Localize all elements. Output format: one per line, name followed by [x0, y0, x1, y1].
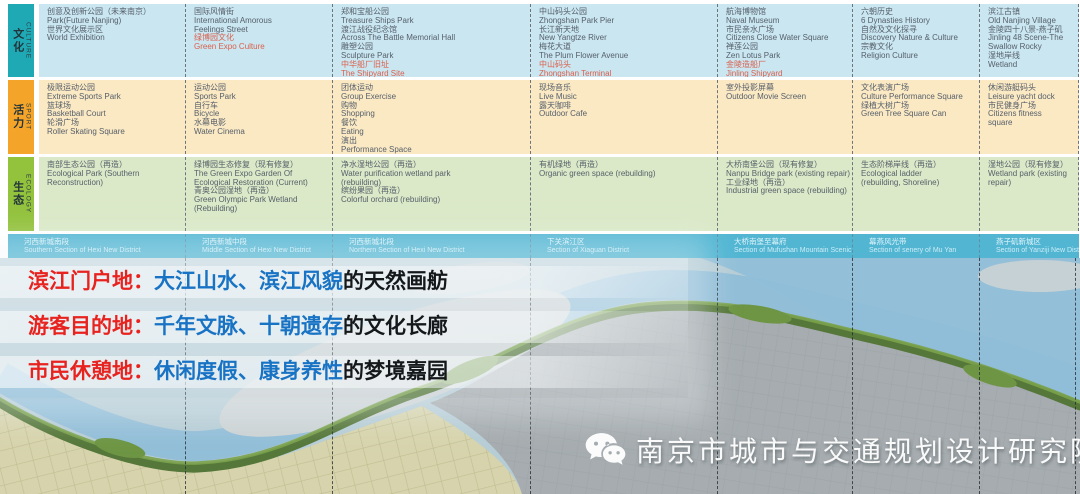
table-row-ecology: 生态ECOLOGY南部生态公园（再造）Ecological Park (Sout…: [8, 157, 1079, 231]
cell-sport-1: 极限运动公园Extreme Sports Park篮球场Basketball C…: [39, 80, 185, 154]
slogan-block: 滨江门户地：大江山水、滨江风貌的天然画舫游客目的地：千年文脉、十朝遗存的文化长廊…: [0, 266, 700, 401]
table-row-culture: 文化CULTURE创意及创新公园（未来南京）Park(Future Nanjin…: [8, 4, 1079, 77]
cell-line: Outdoor Cafe: [539, 110, 717, 119]
section-en: Section of Yanziji New District: [996, 246, 1079, 255]
cell-sport-7: 休闲游艇码头Leisure yacht dock市民健身广场Citizens f…: [979, 80, 1079, 154]
slogan-label: 市民休憩地：: [28, 360, 154, 383]
table-row-sport: 活力SPORT极限运动公园Extreme Sports Park篮球场Baske…: [8, 80, 1079, 154]
cell-line: Jinling Shipyard: [726, 70, 852, 77]
row-header-zh: 活力: [12, 104, 23, 130]
cell-culture-4: 中山码头公园Zhongshan Park Pier长江新天地New Yangtz…: [530, 4, 717, 77]
cell-culture-7: 滨江古镇Old Nanjing Village金陵四十八景-燕子矶Jinling…: [979, 4, 1079, 77]
watermark: 南京市城市与交通规划设计研究院: [584, 430, 1080, 470]
cell-sport-4: 现场音乐Live Music露天咖啡Outdoor Cafe: [530, 80, 717, 154]
slogan-line-3: 市民休憩地：休闲度假、康身养性的梦境嘉园: [0, 356, 688, 388]
cell-line: Reconstruction): [47, 179, 185, 188]
section-zh: 河西新城南段: [24, 237, 185, 246]
section-zh: 幕燕风光带: [869, 237, 979, 246]
cell-line: Colorful orchard (rebuilding): [341, 196, 530, 205]
cell-line: Outdoor Movie Screen: [726, 93, 852, 102]
slogan-highlight: 千年文脉、十朝遗存: [154, 315, 343, 338]
row-header-en: CULTURE: [24, 22, 31, 59]
slogan-tail: 的文化长廊: [343, 315, 448, 338]
section-en: Section of Mufushan Mountain Scenic Area: [734, 246, 852, 255]
cell-line: Religion Culture: [861, 52, 979, 61]
row-body-sport: 极限运动公园Extreme Sports Park篮球场Basketball C…: [39, 80, 1079, 154]
cell-culture-2: 国际风情街International AmorousFeelings Stree…: [185, 4, 332, 77]
row-header-ecology: 生态ECOLOGY: [8, 157, 34, 231]
cell-ecology-1: 南部生态公园（再造）Ecological Park (SouthernRecon…: [39, 157, 185, 231]
row-header-en: ECOLOGY: [24, 174, 31, 213]
section-en: Southern Section of Hexi New District: [24, 246, 185, 255]
cell-sport-2: 运动公园Sports Park自行车Bicycle水幕电影Water Cinem…: [185, 80, 332, 154]
cell-line: 餐饮: [341, 119, 530, 128]
slogan-line-2: 游客目的地：千年文脉、十朝遗存的文化长廊: [0, 311, 688, 343]
section-cell-2: 河西新城中段Middle Section of Hexi New Distric…: [185, 234, 332, 258]
row-header-en: SPORT: [24, 103, 31, 130]
section-cell-5: 大桥南堡至幕府Section of Mufushan Mountain Scen…: [717, 234, 852, 258]
cell-sport-3: 团体运动Group Exercise购物Shopping餐饮Eating演出Pe…: [332, 80, 530, 154]
row-body-ecology: 南部生态公园（再造）Ecological Park (SouthernRecon…: [39, 157, 1079, 231]
cell-line: Wetland: [988, 61, 1078, 70]
watermark-text: 南京市城市与交通规划设计研究院: [636, 430, 1080, 470]
cell-line: Zhongshan Terminal: [539, 70, 717, 77]
planning-board: 文化CULTURE创意及创新公园（未来南京）Park(Future Nanjin…: [0, 0, 1080, 494]
cell-ecology-2: 绿博园生态修复（现有修复）The Green Expo Garden OfEco…: [185, 157, 332, 231]
slogan-label: 滨江门户地：: [28, 270, 154, 293]
cell-ecology-3: 净水湿地公园（再造）Water purification wetland par…: [332, 157, 530, 231]
cell-culture-5: 航海博物馆Naval Museum市民亲水广场Citizens Close Wa…: [717, 4, 852, 77]
cell-line: repair): [988, 179, 1078, 188]
row-header-zh: 文化: [12, 28, 23, 54]
row-header-sport: 活力SPORT: [8, 80, 34, 154]
cell-sport-5: 室外投影屏幕Outdoor Movie Screen: [717, 80, 852, 154]
map-area: 滨江门户地：大江山水、滨江风貌的天然画舫游客目的地：千年文脉、十朝遗存的文化长廊…: [0, 258, 1080, 494]
cell-ecology-4: 有机绿地（再造）Organic green space (rebuilding): [530, 157, 717, 231]
cell-culture-6: 六朝历史6 Dynasties History自然及文化探寻Discovery …: [852, 4, 979, 77]
section-zh: 燕子矶新城区: [996, 237, 1079, 246]
wechat-icon: [584, 431, 628, 469]
cell-line: (Rebuilding): [194, 205, 332, 214]
cell-line: Shopping: [341, 110, 530, 119]
cell-ecology-5: 大桥南堡公园（现有修复）Nanpu Bridge park (existing …: [717, 157, 852, 231]
cell-ecology-7: 湿地公园（现有修复）Wetland park (existingrepair): [979, 157, 1079, 231]
slogan-line-1: 滨江门户地：大江山水、滨江风貌的天然画舫: [0, 266, 688, 298]
section-en: Section of Xiaguan District: [547, 246, 717, 255]
cell-culture-1: 创意及创新公园（未来南京）Park(Future Nanjing)世界文化展示区…: [39, 4, 185, 77]
slogan-tail: 的天然画舫: [343, 270, 448, 293]
program-table: 文化CULTURE创意及创新公园（未来南京）Park(Future Nanjin…: [8, 4, 1079, 234]
cell-line: Green Expo Culture: [194, 43, 332, 52]
section-zh: 下关滨江区: [547, 237, 717, 246]
section-zh: 大桥南堡至幕府: [734, 237, 852, 246]
section-cell-4: 下关滨江区Section of Xiaguan District: [530, 234, 717, 258]
row-header-culture: 文化CULTURE: [8, 4, 34, 77]
slogan-label: 游客目的地：: [28, 315, 154, 338]
cell-line: Industrial green space (rebuilding): [726, 187, 852, 196]
cell-line: (rebuilding, Shoreline): [861, 179, 979, 188]
cell-line: World Exhibition: [47, 34, 185, 43]
cell-line: Roller Skating Square: [47, 128, 185, 137]
cell-line: Group Exercise: [341, 93, 530, 102]
row-header-zh: 生态: [12, 181, 23, 207]
cell-ecology-6: 生态阶梯岸线（再造）Ecological ladder(rebuilding, …: [852, 157, 979, 231]
section-zh: 河西新城中段: [202, 237, 332, 246]
cell-line: Eating: [341, 128, 530, 137]
slogan-highlight: 大江山水、滨江风貌: [154, 270, 343, 293]
cell-line: The Shipyard Site: [341, 70, 530, 77]
cell-line: Performance Space: [341, 146, 530, 154]
slogan-highlight: 休闲度假、康身养性: [154, 360, 343, 383]
cell-line: Green Tree Square Can: [861, 110, 979, 119]
section-cell-1: 河西新城南段Southern Section of Hexi New Distr…: [8, 234, 185, 258]
section-cell-3: 河西新城北段Northern Section of Hexi New Distr…: [332, 234, 530, 258]
section-en: Section of senery of Mu Yan: [869, 246, 979, 255]
cell-sport-6: 文化表演广场Culture Performance Square绿植大树广场Gr…: [852, 80, 979, 154]
section-en: Middle Section of Hexi New District: [202, 246, 332, 255]
section-cell-7: 燕子矶新城区Section of Yanziji New District: [979, 234, 1079, 258]
slogan-tail: 的梦境嘉园: [343, 360, 448, 383]
row-body-culture: 创意及创新公园（未来南京）Park(Future Nanjing)世界文化展示区…: [39, 4, 1079, 77]
section-zh: 河西新城北段: [349, 237, 530, 246]
section-cell-6: 幕燕风光带Section of senery of Mu Yan: [852, 234, 979, 258]
cell-line: Organic green space (rebuilding): [539, 170, 717, 179]
section-strip: 河西新城南段Southern Section of Hexi New Distr…: [8, 234, 1079, 258]
cell-line: Water Cinema: [194, 128, 332, 137]
cell-line: square: [988, 119, 1078, 128]
section-en: Northern Section of Hexi New District: [349, 246, 530, 255]
cell-culture-3: 郑和宝船公园Treasure Ships Park渡江战役纪念馆Across T…: [332, 4, 530, 77]
